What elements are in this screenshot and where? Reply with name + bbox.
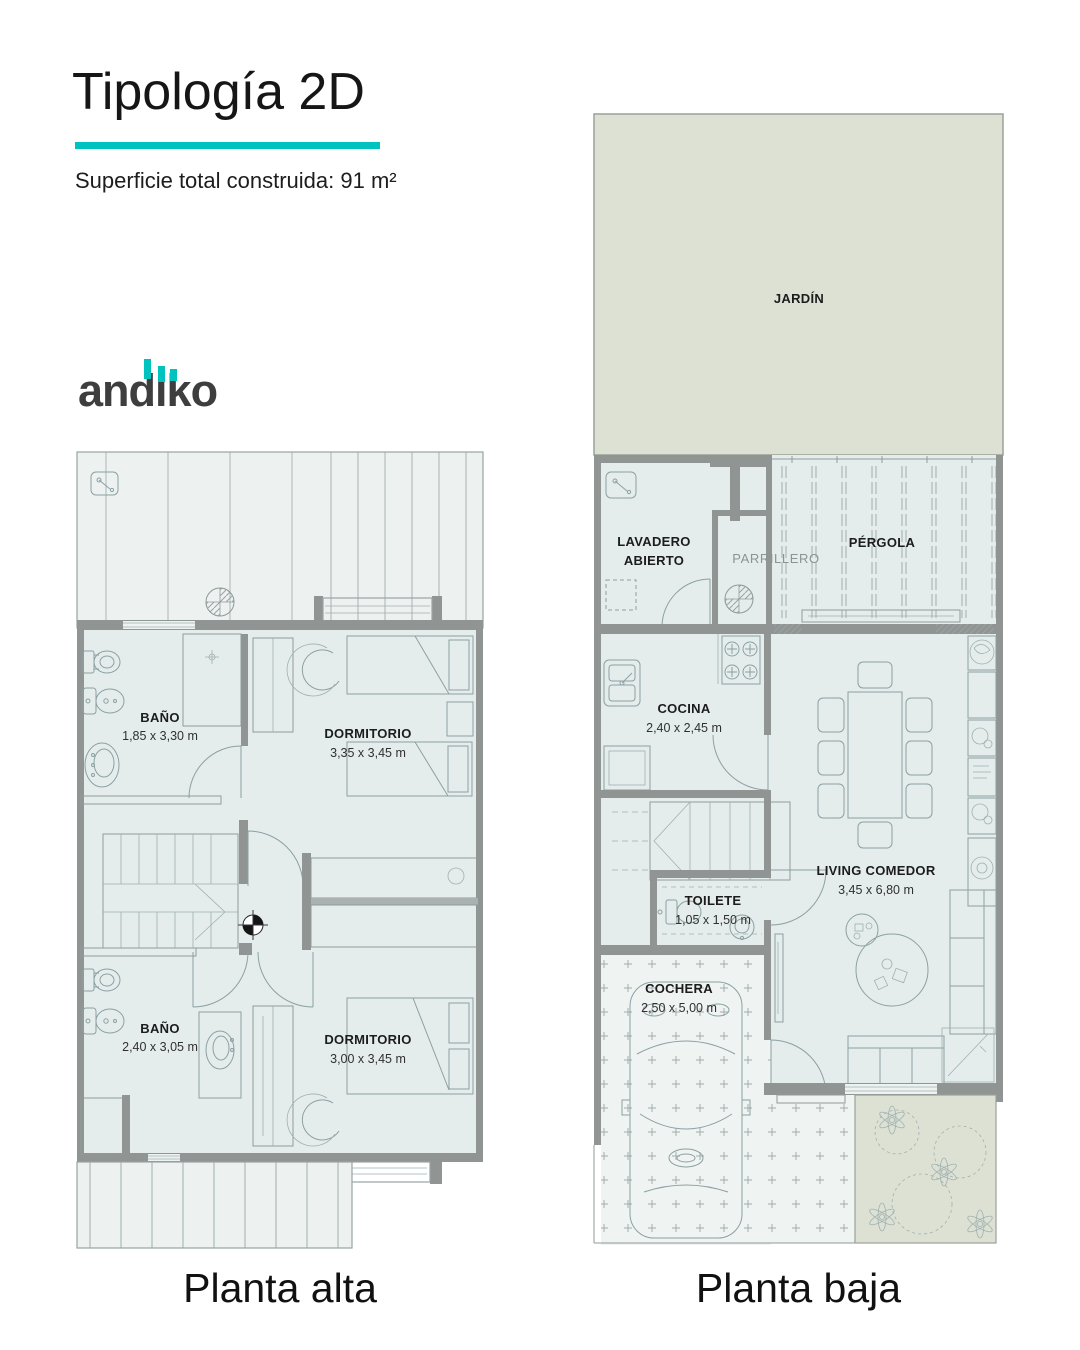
room-label-jardin: JARDÍN	[774, 291, 824, 306]
room-label-pergola: PÉRGOLA	[849, 535, 916, 550]
caption-planta-alta: Planta alta	[75, 1265, 485, 1312]
title-underline	[75, 142, 380, 149]
brand-logo: andiko	[78, 368, 217, 413]
room-dims-cochera: 2,50 x 5,00 m	[641, 1001, 717, 1015]
room-label-lavadero-2: ABIERTO	[624, 553, 684, 568]
vent-symbol	[206, 588, 234, 616]
logo-accent-bar-icon	[144, 359, 151, 379]
room-label-cocina: COCINA	[657, 701, 710, 716]
room-dims-dorm-2: 3,00 x 3,45 m	[330, 1052, 406, 1066]
roof-terrace	[77, 452, 483, 630]
room-dims-bano-2: 2,40 x 3,05 m	[122, 1040, 198, 1054]
room-label-bano-2: BAÑO	[140, 1021, 179, 1036]
room-dims-cocina: 2,40 x 2,45 m	[646, 721, 722, 735]
room-dims-bano-1: 1,85 x 3,30 m	[122, 729, 198, 743]
room-label-bano-1: BAÑO	[140, 710, 179, 725]
room-dims-toilete: 1,05 x 1,50 m	[675, 913, 751, 927]
room-dims-living: 3,45 x 6,80 m	[838, 883, 914, 897]
logo-letter-i: i	[155, 368, 167, 413]
floorplan-planta-baja: JARDÍN LAVADERO ABIERTO PARRILLERO PÉRGO…	[592, 112, 1005, 1245]
room-label-lavadero: LAVADERO	[617, 534, 690, 549]
room-label-living: LIVING COMEDOR	[816, 863, 935, 878]
lower-terrace	[77, 1154, 442, 1248]
caption-planta-baja: Planta baja	[592, 1265, 1005, 1312]
garden-front	[855, 1095, 996, 1243]
grill-symbol	[725, 585, 753, 613]
room-label-toilete: TOILETE	[685, 893, 742, 908]
logo-letter-k: k	[167, 368, 191, 413]
room-label-dorm-2: DORMITORIO	[324, 1032, 411, 1047]
room-label-dorm-1: DORMITORIO	[324, 726, 411, 741]
logo-text-an: an	[78, 368, 129, 413]
logo-letter-d: d	[129, 368, 156, 413]
page-subtitle: Superficie total construida: 91 m²	[75, 168, 397, 194]
floorplan-planta-alta: BAÑO 1,85 x 3,30 m DORMITORIO 3,35 x 3,4…	[75, 450, 485, 1252]
upper-floor-body	[77, 620, 483, 1162]
logo-accent-bar-icon	[158, 366, 165, 382]
room-label-cochera: COCHERA	[645, 981, 713, 996]
page-title: Tipología 2D	[72, 62, 365, 122]
logo-letter-o: o	[191, 368, 218, 413]
logo-accent-bar-icon	[170, 369, 177, 381]
room-label-parrillero: PARRILLERO	[732, 551, 819, 566]
garden-back: JARDÍN	[594, 114, 1003, 455]
room-dims-dorm-1: 3,35 x 3,45 m	[330, 746, 406, 760]
